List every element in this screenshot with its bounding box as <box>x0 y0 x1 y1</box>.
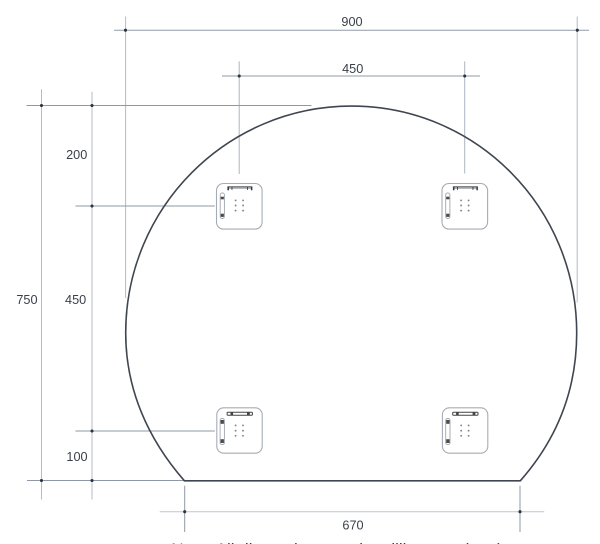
svg-text:900: 900 <box>341 15 362 29</box>
svg-text:450: 450 <box>65 293 86 307</box>
svg-text:100: 100 <box>66 450 87 464</box>
svg-text:200: 200 <box>66 148 87 162</box>
svg-text:450: 450 <box>342 62 363 76</box>
svg-text:Note: All dimensions are in mi: Note: All dimensions are in millimeters … <box>171 540 503 544</box>
svg-text:670: 670 <box>342 518 363 532</box>
svg-text:750: 750 <box>16 293 37 307</box>
